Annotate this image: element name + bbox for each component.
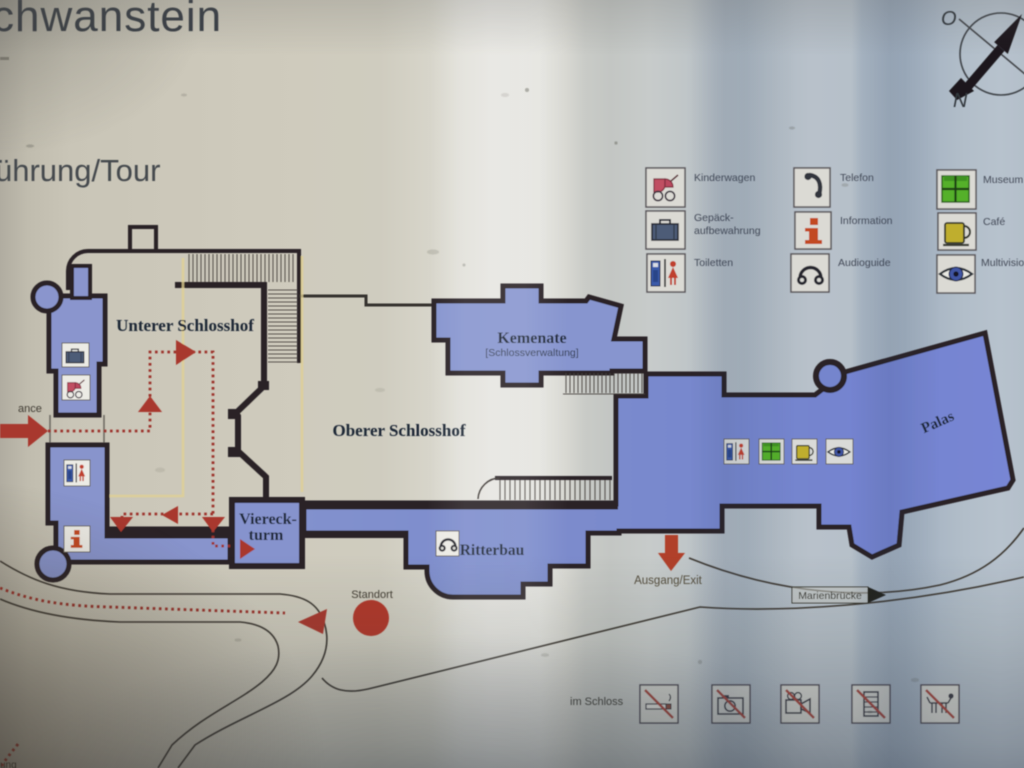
svg-text:Audioguide: Audioguide: [838, 257, 891, 269]
svg-text:Oberer Schlosshof: Oberer Schlosshof: [332, 421, 465, 440]
svg-text:Kinderwagen: Kinderwagen: [694, 172, 755, 184]
svg-text:[Schlossverwaltung]: [Schlossverwaltung]: [485, 347, 578, 359]
svg-text:Ritterbau: Ritterbau: [460, 542, 525, 559]
svg-text:ührung/Tour: ührung/Tour: [0, 153, 160, 188]
svg-text:chwanstein: chwanstein: [0, 0, 222, 41]
svg-text:Gepäck-: Gepäck-: [694, 212, 734, 224]
svg-text:Unterer Schlosshof: Unterer Schlosshof: [116, 316, 254, 335]
svg-text:Standort: Standort: [351, 589, 393, 601]
svg-text:aufbewahrung: aufbewahrung: [694, 225, 761, 237]
svg-text:Marienbrücke: Marienbrücke: [798, 590, 862, 602]
svg-text:Kemenate: Kemenate: [497, 330, 566, 347]
svg-text:ung: ung: [0, 760, 17, 768]
svg-text:O: O: [941, 8, 957, 30]
svg-text:Information: Information: [840, 215, 893, 227]
svg-text:Multivisio: Multivisio: [981, 257, 1024, 269]
svg-text:im Schloss: im Schloss: [570, 696, 624, 708]
svg-text:Ausgang/Exit: Ausgang/Exit: [634, 575, 703, 587]
svg-text:ance: ance: [18, 403, 42, 415]
svg-text:Museum: Museum: [983, 174, 1024, 186]
svg-text:Café: Café: [983, 216, 1005, 228]
svg-text:turm: turm: [249, 527, 284, 544]
svg-text:N: N: [953, 90, 968, 112]
svg-text:Telefon: Telefon: [840, 172, 874, 184]
svg-text:Viereck-: Viereck-: [239, 511, 297, 528]
svg-text:Toiletten: Toiletten: [694, 257, 733, 269]
